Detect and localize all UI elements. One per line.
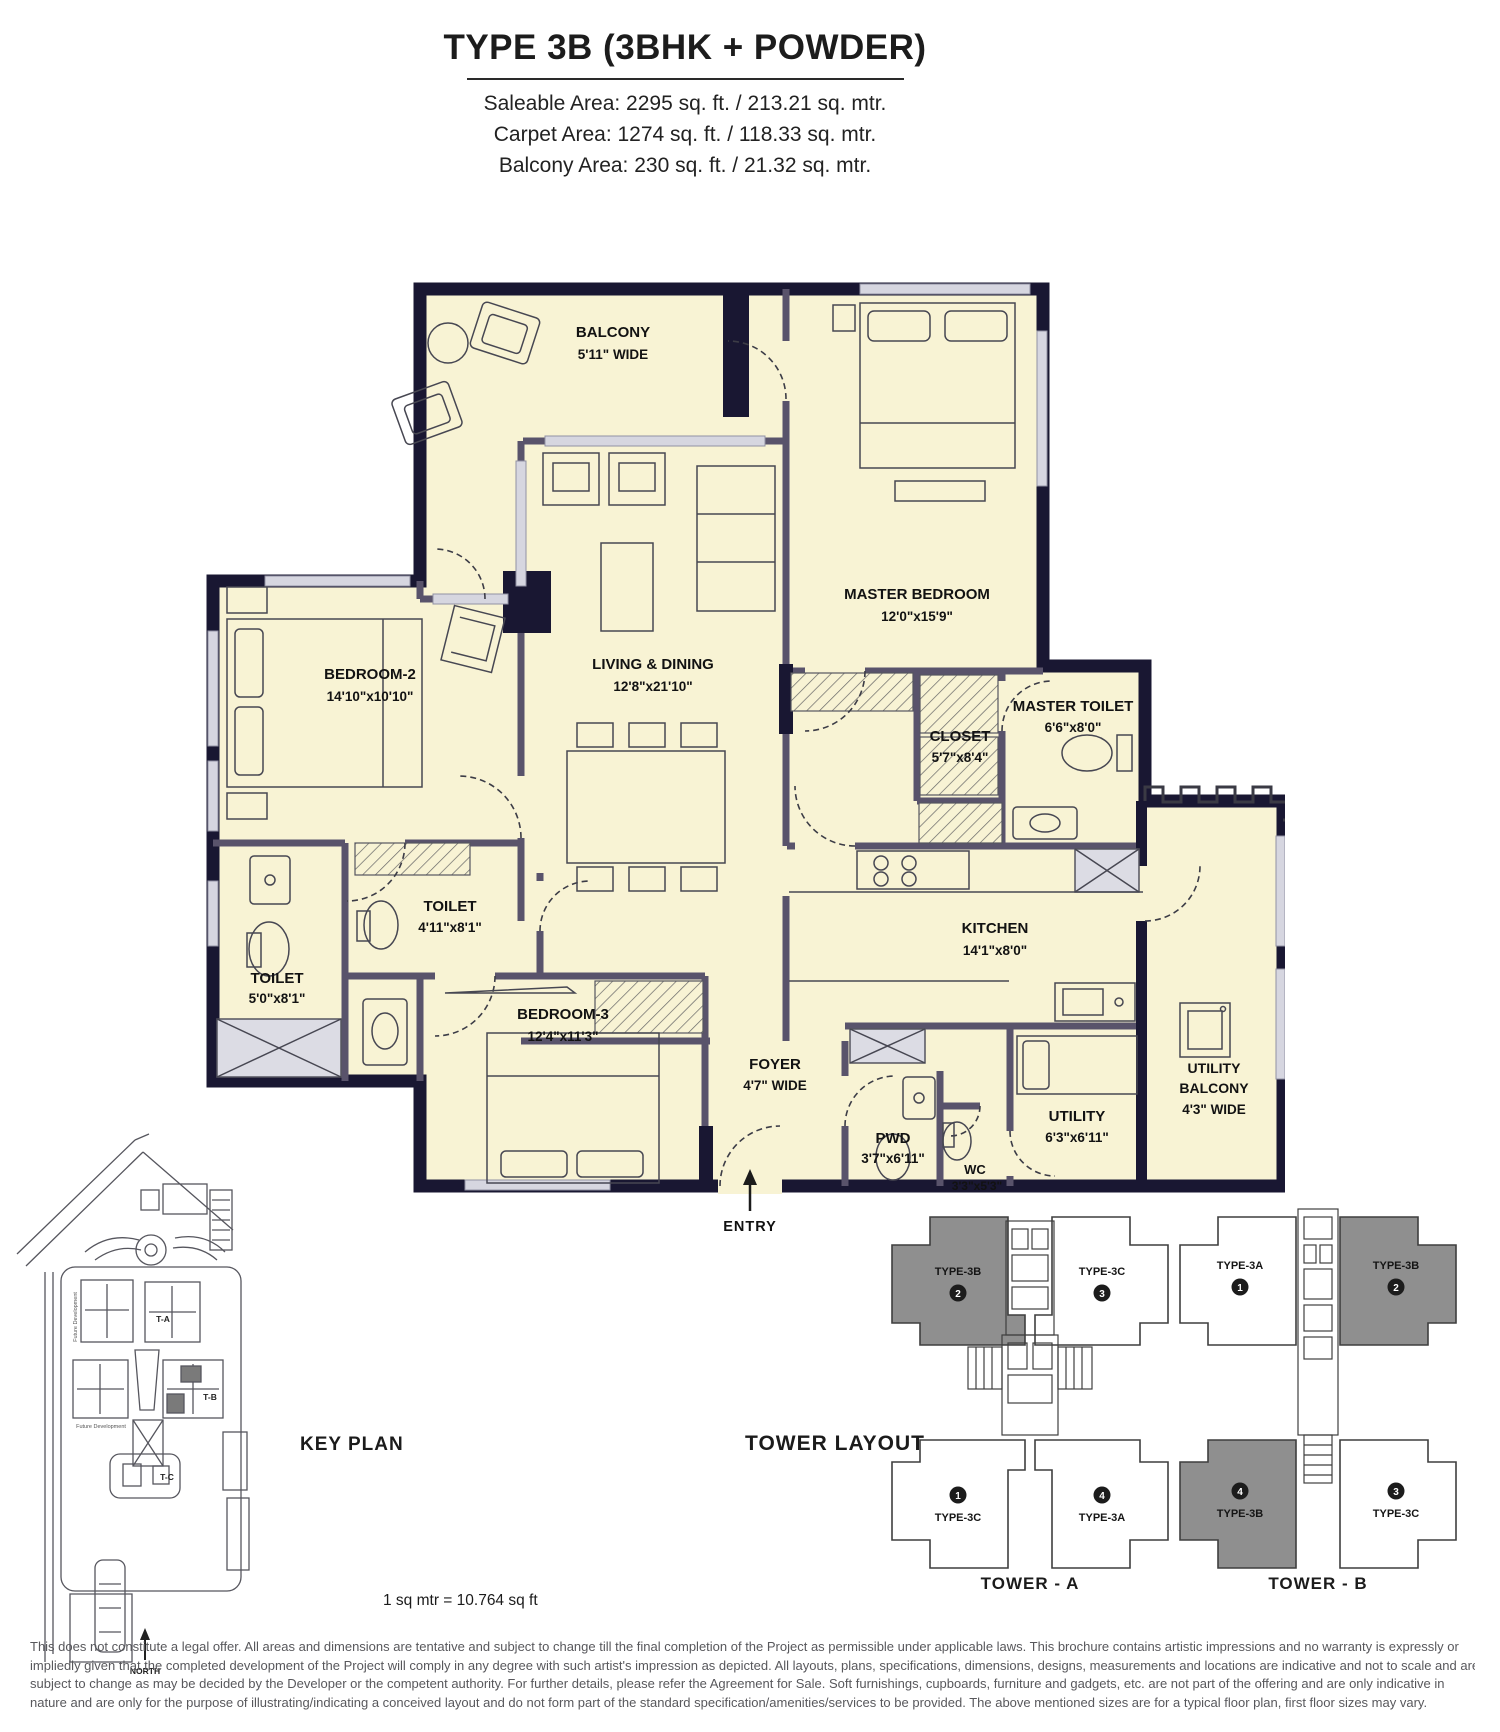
label-toilet1: TOILET (423, 898, 476, 915)
svg-text:12'0"x15'9": 12'0"x15'9" (881, 609, 953, 624)
svg-text:TYPE-3C: TYPE-3C (935, 1512, 982, 1524)
label-utility-balcony: UTILITY (1188, 1060, 1242, 1076)
tower-b-unit-3c (1340, 1440, 1456, 1568)
saleable-area: Saleable Area: 2295 sq. ft. / 213.21 sq.… (385, 88, 985, 119)
label-master-toilet: MASTER TOILET (1013, 698, 1134, 715)
tower-a-unit-3b (892, 1217, 1025, 1345)
keyplan-tb: T-B (203, 1392, 217, 1402)
svg-text:TYPE-3A: TYPE-3A (1079, 1512, 1126, 1524)
label-balcony: BALCONY (576, 324, 650, 341)
svg-text:3'3"x5'3": 3'3"x5'3" (952, 1179, 1002, 1193)
label-foyer: FOYER (749, 1056, 801, 1073)
keyplan-ta: T-A (156, 1314, 170, 1324)
tower-b-diagram: TYPE-3A 1 TYPE-3B 2 4 TYPE-3B 3 TYPE-3C … (1168, 1195, 1468, 1595)
svg-text:4'3" WIDE: 4'3" WIDE (1182, 1102, 1246, 1117)
svg-text:4'7" WIDE: 4'7" WIDE (743, 1078, 807, 1093)
svg-text:TYPE-3A: TYPE-3A (1217, 1260, 1264, 1272)
svg-text:TYPE-3B: TYPE-3B (1217, 1508, 1264, 1520)
label-living-dining: LIVING & DINING (592, 656, 714, 673)
title-divider (467, 78, 904, 80)
label-pwd: PWD (876, 1130, 911, 1147)
label-bedroom3: BEDROOM-3 (517, 1006, 609, 1023)
svg-text:14'10"x10'10": 14'10"x10'10" (327, 689, 414, 704)
balcony-area: Balcony Area: 230 sq. ft. / 21.32 sq. mt… (385, 150, 985, 181)
svg-text:3: 3 (1393, 1487, 1399, 1498)
keyplan-future1: Future Development (73, 1292, 79, 1342)
svg-text:5'7"x8'4": 5'7"x8'4" (932, 750, 989, 765)
label-bedroom2: BEDROOM-2 (324, 666, 416, 683)
tower-a-unit-3a (1035, 1440, 1168, 1568)
page-title: TYPE 3B (3BHK + POWDER) (385, 28, 985, 68)
carpet-area: Carpet Area: 1274 sq. ft. / 118.33 sq. m… (385, 119, 985, 150)
label-closet: CLOSET (930, 728, 991, 745)
label-master-bedroom: MASTER BEDROOM (844, 586, 990, 603)
svg-text:3: 3 (1099, 1289, 1105, 1300)
svg-text:12'8"x21'10": 12'8"x21'10" (613, 679, 692, 694)
label-toilet2: TOILET (250, 970, 303, 987)
tower-a-unit-3c-top (1035, 1217, 1168, 1345)
floor-plan: BALCONY 5'11" WIDE MASTER BEDROOM 12'0"x… (205, 281, 1285, 1241)
tower-a-unit-3c-bottom (892, 1440, 1025, 1568)
disclaimer-line: This does not constitute a legal offer. … (30, 1638, 1475, 1657)
disclaimer: This does not constitute a legal offer. … (30, 1638, 1475, 1712)
svg-text:3'7"x6'11": 3'7"x6'11" (861, 1151, 925, 1166)
disclaimer-line: impliedly given that the completed devel… (30, 1657, 1475, 1676)
svg-text:TYPE-3B: TYPE-3B (1373, 1260, 1420, 1272)
header: TYPE 3B (3BHK + POWDER) Saleable Area: 2… (385, 28, 985, 181)
tower-b-caption: TOWER - B (1268, 1574, 1367, 1593)
svg-text:TYPE-3B: TYPE-3B (935, 1266, 982, 1278)
label-utility: UTILITY (1049, 1108, 1106, 1125)
svg-text:1: 1 (1237, 1283, 1243, 1294)
key-plan-map: T-A T-B T-C Future Development Future De… (15, 1132, 295, 1707)
svg-text:14'1"x8'0": 14'1"x8'0" (963, 943, 1027, 958)
svg-text:1: 1 (955, 1491, 961, 1502)
keyplan-heading: KEY PLAN (300, 1434, 404, 1456)
disclaimer-line: subject to change as may be decided by t… (30, 1675, 1475, 1694)
svg-text:TYPE-3C: TYPE-3C (1079, 1266, 1126, 1278)
tower-a-caption: TOWER - A (981, 1574, 1080, 1593)
svg-text:2: 2 (1393, 1283, 1399, 1294)
svg-text:5'0"x8'1": 5'0"x8'1" (249, 991, 306, 1006)
keyplan-future2: Future Development (76, 1424, 126, 1430)
conversion-note: 1 sq mtr = 10.764 sq ft (383, 1592, 538, 1610)
svg-text:2: 2 (955, 1289, 961, 1300)
tower-b-core (1298, 1209, 1338, 1483)
svg-text:4: 4 (1099, 1491, 1105, 1502)
label-wc: WC (964, 1162, 986, 1177)
svg-text:TYPE-3C: TYPE-3C (1373, 1508, 1420, 1520)
svg-text:5'11" WIDE: 5'11" WIDE (578, 347, 648, 362)
svg-text:BALCONY: BALCONY (1179, 1080, 1249, 1096)
label-kitchen: KITCHEN (962, 920, 1029, 937)
tower-b-unit-3b-bottom (1180, 1440, 1296, 1568)
disclaimer-line: nature and are only for the purpose of i… (30, 1694, 1475, 1713)
keyplan-tc: T-C (160, 1472, 174, 1482)
svg-text:4: 4 (1237, 1487, 1243, 1498)
svg-text:ENTRY: ENTRY (723, 1219, 777, 1235)
svg-text:12'4"x11'3": 12'4"x11'3" (527, 1029, 598, 1044)
brochure-page: TYPE 3B (3BHK + POWDER) Saleable Area: 2… (0, 0, 1500, 1732)
svg-text:4'11"x8'1": 4'11"x8'1" (418, 920, 482, 935)
plan-outline (213, 289, 1283, 1186)
svg-text:6'3"x6'11": 6'3"x6'11" (1045, 1130, 1109, 1145)
tower-a-diagram: TYPE-3B 2 TYPE-3C 3 1 TYPE-3C 4 TYPE-3A … (880, 1195, 1180, 1595)
svg-text:6'6"x8'0": 6'6"x8'0" (1045, 720, 1102, 735)
